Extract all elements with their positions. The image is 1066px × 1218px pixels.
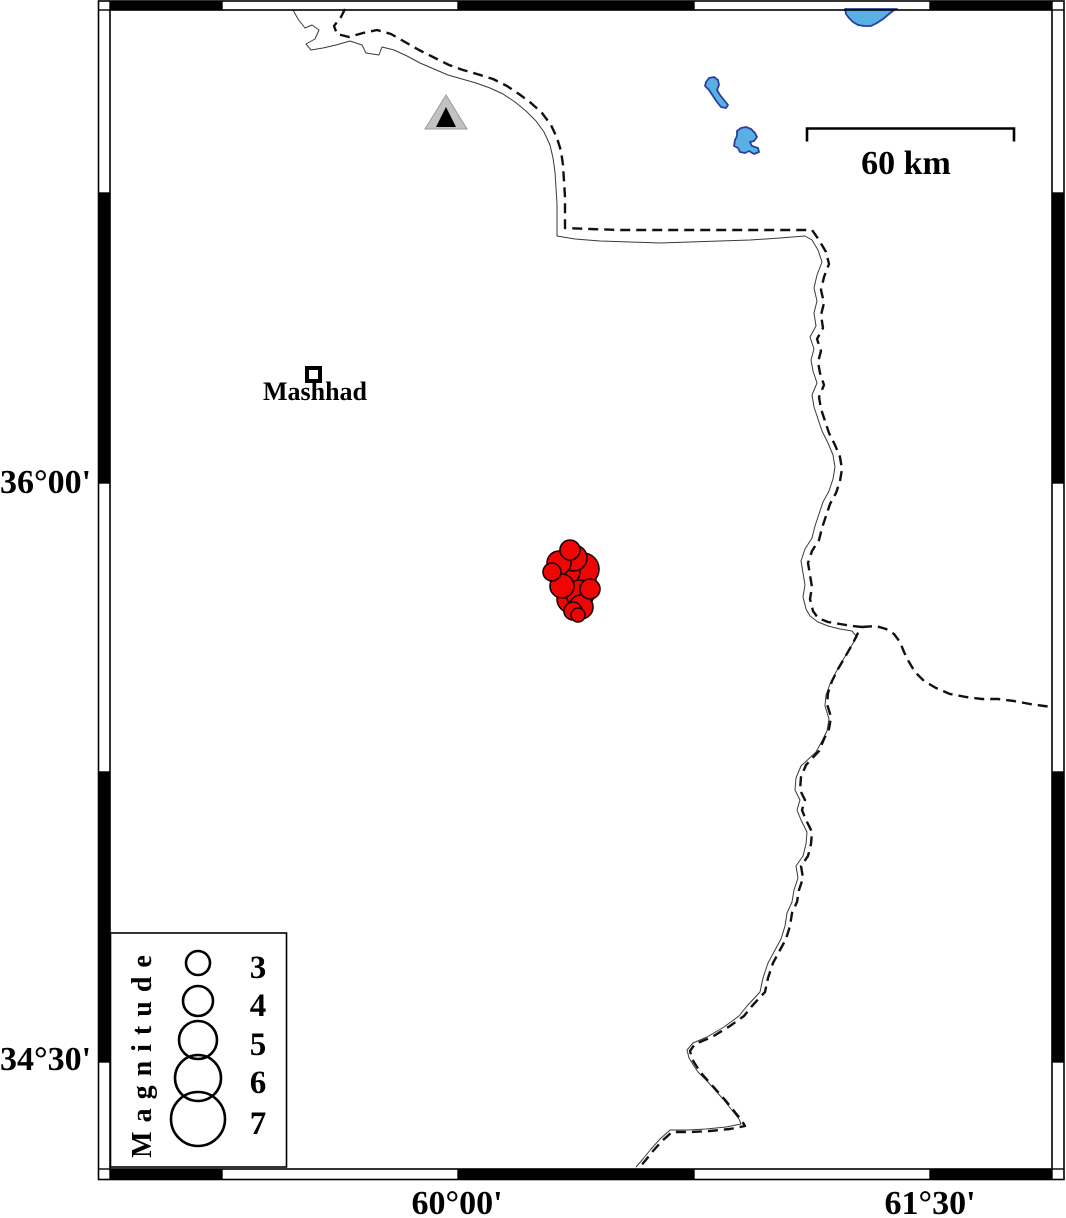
- frame-tick-right: [1052, 193, 1064, 483]
- lon-label-60-00: 60°00': [377, 1187, 537, 1218]
- frame-tick-top: [930, 1, 1052, 10]
- earthquake-epicenter: [571, 608, 585, 622]
- frame-tick-top: [110, 1, 222, 10]
- legend-magnitude-7: 7: [228, 1108, 288, 1141]
- earthquake-epicenter: [543, 563, 561, 581]
- legend-title: Magnitude: [129, 946, 157, 1158]
- lat-label-34-30: 34°30': [0, 1043, 88, 1077]
- frame-tick-top: [458, 1, 694, 10]
- frame-tick-bottom: [458, 1169, 694, 1180]
- legend-magnitude-4: 4: [228, 990, 288, 1023]
- scale-bar-label: 60 km: [816, 147, 996, 181]
- lon-label-61-30: 61°30': [850, 1187, 1010, 1218]
- country-border-branch: [862, 626, 1052, 707]
- scale-bar: [807, 129, 1014, 142]
- legend-magnitude-3: 3: [228, 952, 288, 985]
- frame-tick-bottom: [110, 1169, 222, 1180]
- legend-magnitude-5: 5: [228, 1029, 288, 1062]
- lat-label-36-00: 36°00': [0, 466, 88, 500]
- map-canvas: [0, 0, 1066, 1218]
- frame-tick-bottom: [930, 1169, 1052, 1180]
- legend-magnitude-6: 6: [228, 1067, 288, 1100]
- frame-tick-left: [99, 193, 111, 483]
- frame-tick-right: [1052, 772, 1064, 1062]
- lake-3: [734, 127, 759, 154]
- lake-1: [845, 9, 897, 26]
- city-label-mashhad: Mashhad: [225, 379, 405, 405]
- earthquake-epicenter: [560, 540, 580, 560]
- seismicity-map: 36°00' 34°30' 60°00' 61°30' 60 km Mashha…: [0, 0, 1066, 1218]
- earthquake-epicenter: [580, 579, 600, 599]
- frame-tick-left: [99, 772, 111, 1062]
- lake-2: [705, 77, 728, 108]
